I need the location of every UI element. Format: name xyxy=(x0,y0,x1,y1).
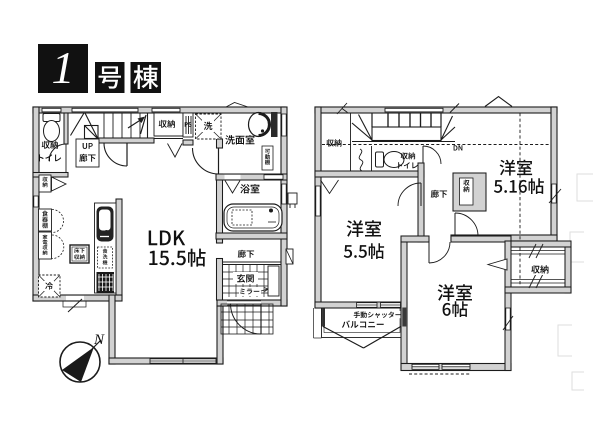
svg-text:1: 1 xyxy=(52,42,75,93)
svg-text:N: N xyxy=(93,332,105,348)
